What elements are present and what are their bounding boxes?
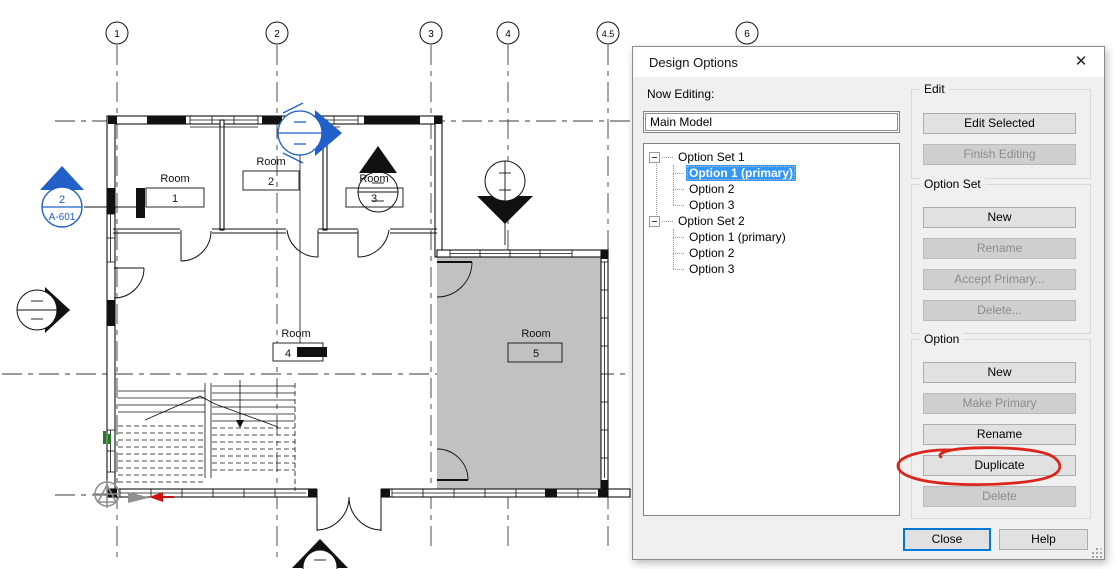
tree-connector (656, 157, 658, 221)
now-editing-field[interactable]: Main Model (643, 111, 900, 133)
room-tag-3[interactable]: Room 3 (346, 173, 403, 207)
section-marker[interactable]: 2 A-601 (40, 166, 145, 227)
svg-text:Room: Room (160, 173, 189, 185)
grid-bubble-6[interactable]: 6 (736, 22, 758, 44)
svg-text:5: 5 (533, 348, 539, 360)
svg-text:1: 1 (172, 193, 178, 205)
room-tag-2[interactable]: Room 2 (243, 156, 299, 190)
svg-text:1: 1 (114, 29, 120, 40)
svg-text:4: 4 (505, 29, 511, 40)
edit-group-label: Edit (920, 82, 949, 96)
option-group-label: Option (920, 332, 963, 346)
grid-bubble-1[interactable]: 1 (106, 22, 128, 44)
option-set-group-label: Option Set (920, 177, 985, 191)
design-options-dialog: Design Options ✕ Now Editing: Main Model… (632, 46, 1105, 560)
svg-text:3: 3 (371, 193, 377, 205)
svg-text:Room: Room (359, 173, 388, 185)
edit-group: Edit (911, 89, 1091, 179)
room-tag-4[interactable]: Room 4 (273, 328, 327, 361)
grid-bubble-4-5[interactable]: 4.5 (597, 22, 619, 44)
finish-editing-button[interactable]: Finish Editing (923, 144, 1076, 165)
tree-item-option-set-1[interactable]: Option Set 1 (649, 149, 899, 165)
room-tag-1[interactable]: Room 1 (146, 173, 204, 207)
make-primary-button[interactable]: Make Primary (923, 393, 1076, 414)
svg-text:4: 4 (285, 348, 291, 360)
collapse-icon[interactable] (649, 152, 660, 163)
option-set-new-button[interactable]: New (923, 207, 1076, 228)
close-icon[interactable]: ✕ (1072, 53, 1090, 71)
help-button[interactable]: Help (999, 529, 1088, 550)
tree-item-option-3[interactable]: Option 3 (673, 197, 899, 213)
tree-item-option-set-2[interactable]: Option Set 2 (649, 213, 899, 229)
grid-bubble-2[interactable]: 2 (266, 22, 288, 44)
elevation-marker-grid4[interactable] (477, 161, 533, 245)
svg-text:2: 2 (274, 29, 280, 40)
option-new-button[interactable]: New (923, 362, 1076, 383)
elevation-marker-bottom[interactable] (292, 539, 348, 569)
tree-item-option-3b[interactable]: Option 3 (673, 261, 899, 277)
grid-bubble-4[interactable]: 4 (497, 22, 519, 44)
tree-item-option-1-primary-selected[interactable]: Option 1 (primary) (673, 165, 899, 181)
svg-text:2: 2 (268, 176, 274, 188)
option-delete-button[interactable]: Delete (923, 486, 1076, 507)
now-editing-value: Main Model (645, 113, 898, 131)
selected-elevation-marker[interactable] (278, 103, 342, 346)
options-tree[interactable]: Option Set 1 Option 1 (primary) Option 2… (643, 143, 900, 516)
duplicate-button[interactable]: Duplicate (923, 455, 1076, 476)
tree-item-option-1-primary[interactable]: Option 1 (primary) (673, 229, 899, 245)
svg-text:Room: Room (281, 328, 310, 340)
svg-text:A-601: A-601 (49, 212, 76, 223)
revit-app-canvas: 1 2 3 4 4.5 6 (0, 0, 1115, 569)
grid-bubble-3[interactable]: 3 (420, 22, 442, 44)
option-set-delete-button[interactable]: Delete... (923, 300, 1076, 321)
option-rename-button[interactable]: Rename (923, 424, 1076, 445)
svg-text:3: 3 (428, 29, 434, 40)
svg-text:2: 2 (59, 194, 65, 206)
option-set-rename-button[interactable]: Rename (923, 238, 1076, 259)
elevation-marker-left[interactable] (17, 287, 70, 333)
svg-text:6: 6 (744, 29, 750, 40)
resize-grip[interactable] (1096, 552, 1098, 554)
tree-item-option-2[interactable]: Option 2 (673, 181, 899, 197)
svg-text:Room: Room (521, 328, 550, 340)
svg-text:4.5: 4.5 (602, 29, 615, 39)
edit-selected-button[interactable]: Edit Selected (923, 113, 1076, 134)
grid-bubbles: 1 2 3 4 4.5 6 (106, 22, 758, 44)
now-editing-label: Now Editing: (647, 87, 714, 101)
design-option-area[interactable] (437, 255, 605, 490)
doors (114, 230, 472, 531)
svg-text:Room: Room (256, 156, 285, 168)
collapse-icon[interactable] (649, 216, 660, 227)
tree-item-option-2b[interactable]: Option 2 (673, 245, 899, 261)
accept-primary-button[interactable]: Accept Primary... (923, 269, 1076, 290)
dialog-title: Design Options (649, 55, 738, 70)
close-button[interactable]: Close (903, 528, 991, 551)
stairs (118, 380, 295, 491)
dialog-titlebar[interactable]: Design Options ✕ (633, 47, 1104, 77)
